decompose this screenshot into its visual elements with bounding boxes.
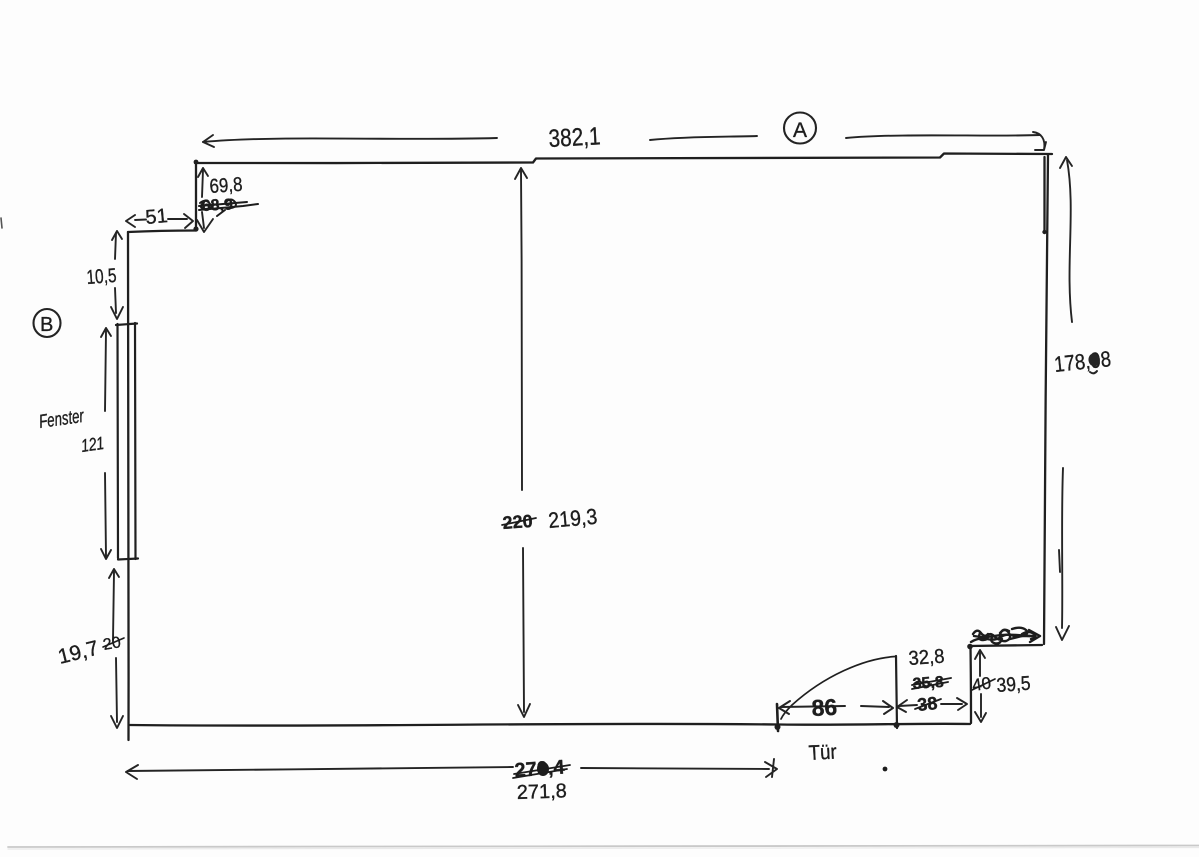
svg-text:B: B xyxy=(40,314,53,336)
svg-text:86: 86 xyxy=(811,694,838,721)
svg-text:Tür: Tür xyxy=(808,741,837,765)
svg-text:121: 121 xyxy=(80,433,106,456)
svg-text:32,8: 32,8 xyxy=(908,646,945,670)
svg-text:10,5: 10,5 xyxy=(86,265,117,289)
svg-text:39,5: 39,5 xyxy=(996,673,1031,697)
svg-text:69,8: 69,8 xyxy=(209,174,243,198)
svg-text:20: 20 xyxy=(102,634,123,654)
svg-text:271,8: 271,8 xyxy=(516,780,567,804)
svg-text:178,98: 178,98 xyxy=(1053,346,1112,377)
svg-text:A: A xyxy=(793,119,807,142)
svg-text:219,3: 219,3 xyxy=(547,504,598,533)
svg-text:19,7: 19,7 xyxy=(56,637,101,669)
svg-text:51: 51 xyxy=(145,205,169,229)
svg-text:40: 40 xyxy=(971,674,992,695)
svg-text:Fenster: Fenster xyxy=(38,406,86,433)
svg-text:382,1: 382,1 xyxy=(548,122,601,153)
